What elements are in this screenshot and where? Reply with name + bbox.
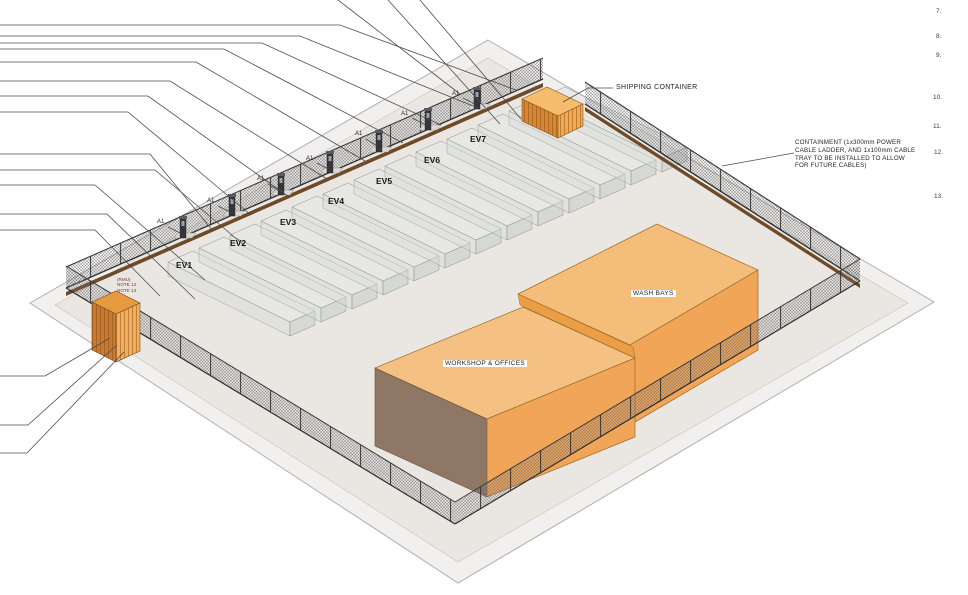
ev5-label: EV5 — [376, 176, 392, 186]
ev4-label: EV4 — [328, 196, 344, 206]
isolator-tag-a1: A1 — [452, 91, 459, 97]
transformer-notes: (RMU) NOTE 12 NOTE 13 — [117, 277, 136, 293]
isolator-tag-a1: A1 — [257, 176, 264, 182]
notes-list-number-12: 12. — [934, 149, 943, 156]
isolator-tag-a1: A1 — [207, 198, 214, 204]
isolator-tag-a1: A1 — [157, 219, 164, 225]
notes-list-number-13: 13. — [934, 193, 943, 200]
shipping-container-label: SHIPPING CONTAINER — [616, 84, 698, 91]
isolator-tag-a1: A1 — [355, 131, 362, 137]
wash-bays-label: WASH BAYS — [631, 290, 676, 297]
ev7-label: EV7 — [470, 134, 486, 144]
notes-list-number-8: 8. — [936, 33, 941, 40]
ev2-label: EV2 — [230, 238, 246, 248]
drawing-canvas: SHIPPING CONTAINER CONTAINMENT (1x300mm … — [0, 0, 968, 595]
containment-note: CONTAINMENT (1x300mm POWER CABLE LADDER,… — [795, 139, 945, 170]
transformer-kiosk — [92, 291, 140, 362]
site-plan-scene — [0, 0, 968, 595]
notes-list-number-9: 9. — [936, 52, 941, 59]
isolator-tag-a1: A1 — [401, 111, 408, 117]
notes-list-number-7: 7. — [936, 8, 941, 15]
ev3-label: EV3 — [280, 217, 296, 227]
ev1-label: EV1 — [176, 260, 192, 270]
ev6-label: EV6 — [424, 155, 440, 165]
notes-list-number-11: 11. — [933, 123, 942, 130]
isolator-tag-a1: A1 — [306, 156, 313, 162]
workshop-offices-label: WORKSHOP & OFFICES — [443, 360, 527, 367]
notes-list-number-10: 10. — [933, 94, 942, 101]
